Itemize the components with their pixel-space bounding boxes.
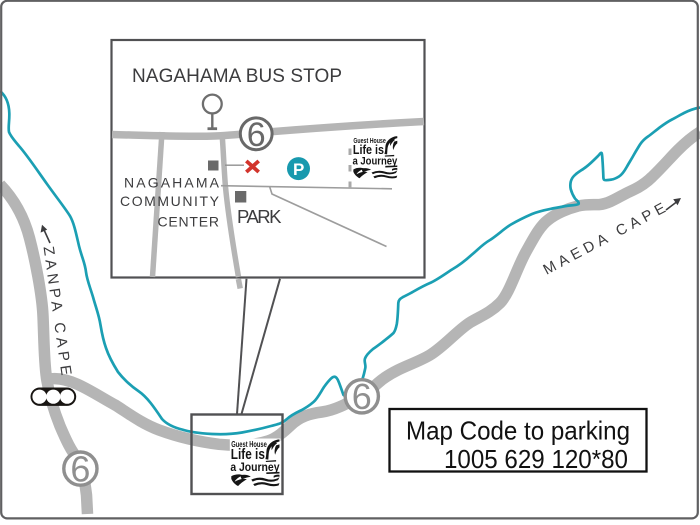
svg-text:6: 6 xyxy=(70,448,90,489)
svg-text:NAGAHAMA: NAGAHAMA xyxy=(124,174,220,190)
svg-text:P: P xyxy=(293,160,304,179)
svg-text:1005 629 120*80: 1005 629 120*80 xyxy=(444,444,628,474)
svg-text:6: 6 xyxy=(352,376,372,417)
svg-text:6: 6 xyxy=(247,116,266,154)
svg-text:Map Code to parking: Map Code to parking xyxy=(406,416,630,446)
svg-text:NAGAHAMA BUS STOP: NAGAHAMA BUS STOP xyxy=(132,66,342,87)
svg-text:CENTER: CENTER xyxy=(158,213,220,229)
svg-text:COMMUNITY: COMMUNITY xyxy=(120,193,220,209)
svg-text:PARK: PARK xyxy=(237,206,282,227)
